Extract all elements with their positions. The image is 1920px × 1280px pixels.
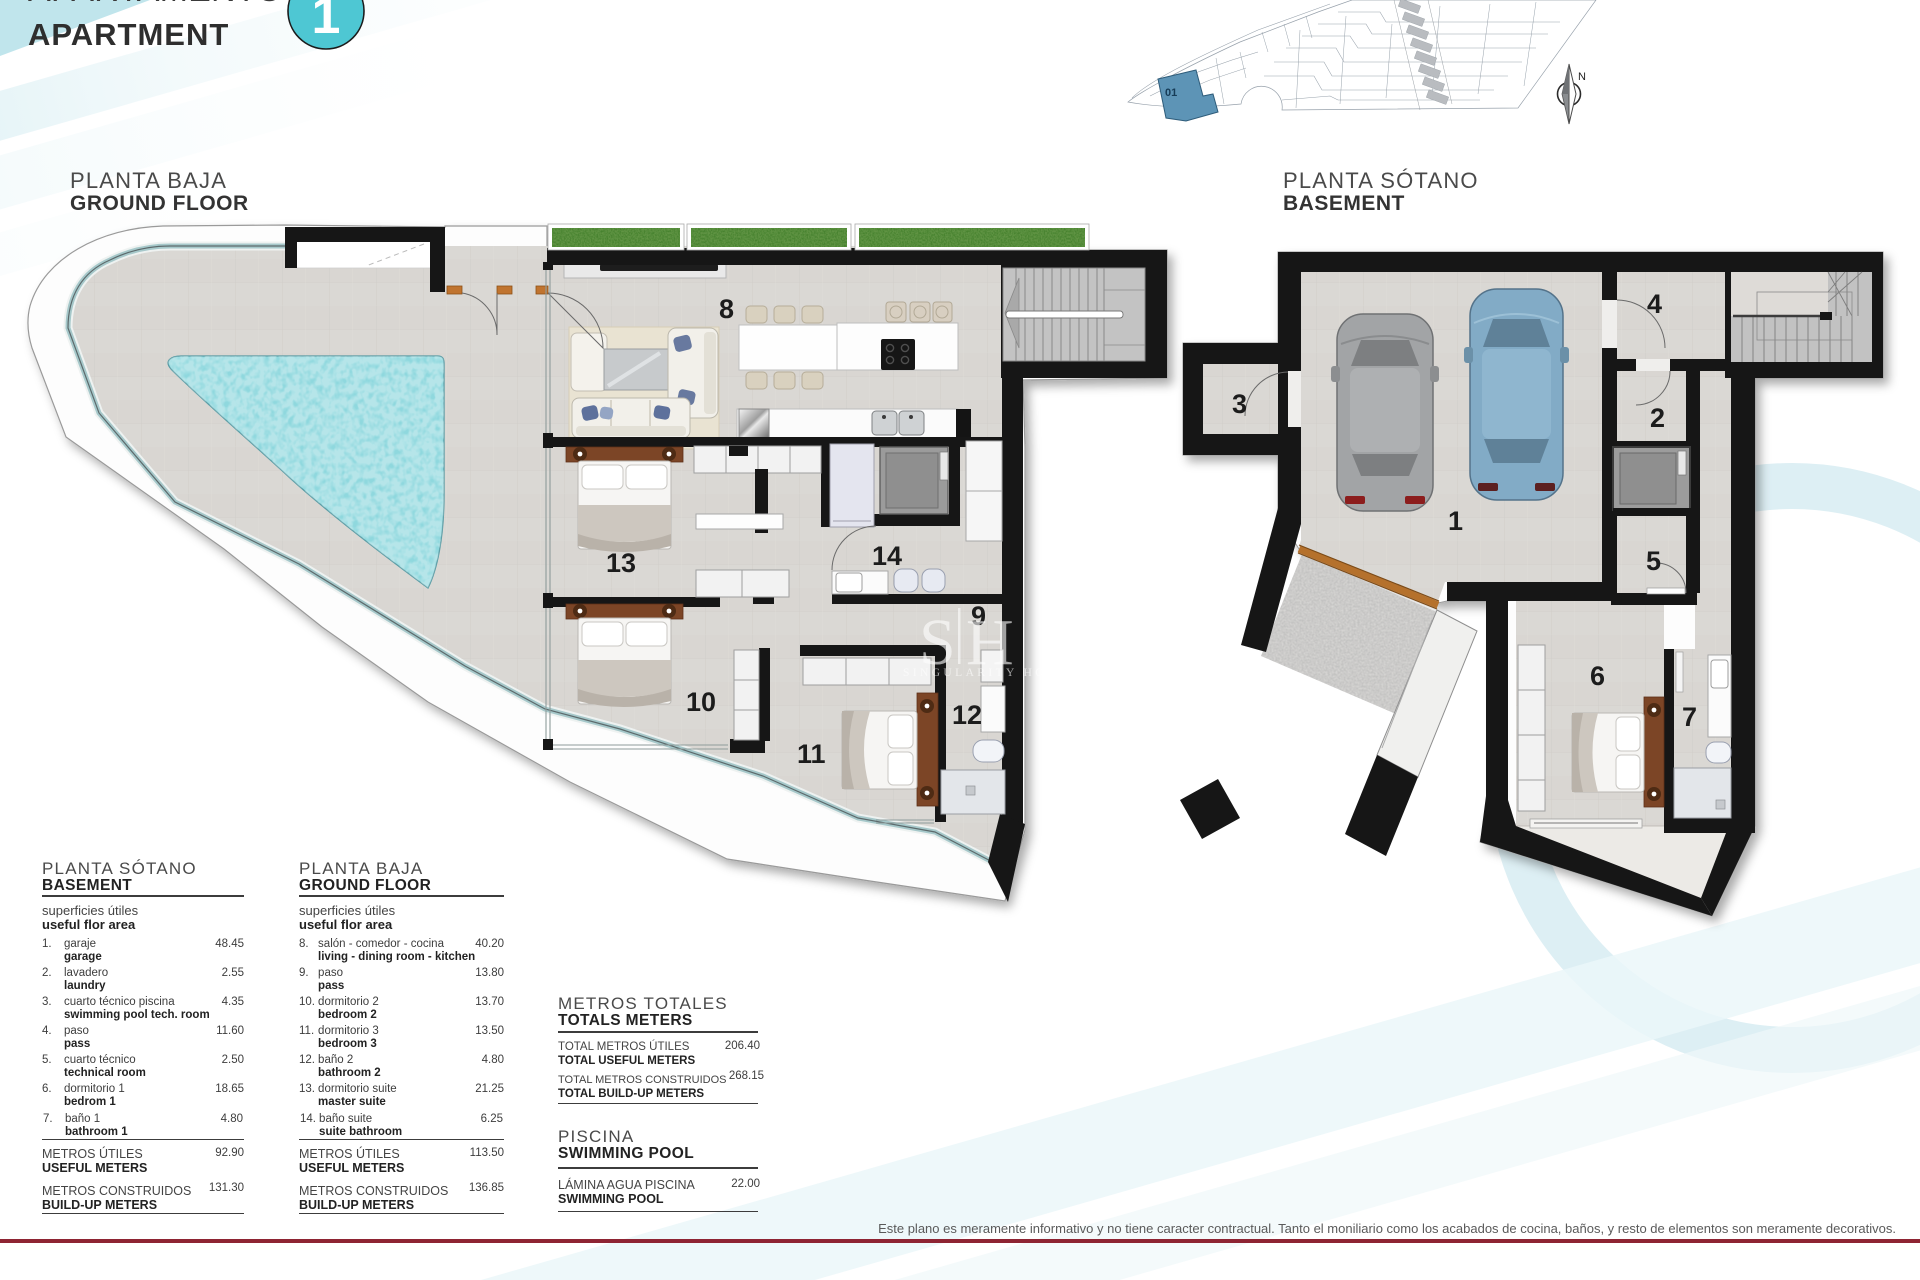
svg-text:12: 12 xyxy=(952,700,982,730)
svg-text:7: 7 xyxy=(1682,702,1697,732)
svg-text:10: 10 xyxy=(686,687,716,717)
svg-text:6: 6 xyxy=(1590,661,1605,691)
svg-text:8: 8 xyxy=(719,294,734,324)
svg-text:3: 3 xyxy=(1232,389,1247,419)
svg-text:N: N xyxy=(1578,71,1586,83)
svg-text:01: 01 xyxy=(1165,87,1177,99)
svg-text:4: 4 xyxy=(1647,289,1662,319)
svg-text:11: 11 xyxy=(797,739,826,769)
svg-text:5: 5 xyxy=(1646,546,1661,576)
svg-text:SINGULARITY HOM: SINGULARITY HOM xyxy=(903,667,1061,679)
svg-text:14: 14 xyxy=(872,541,902,571)
svg-text:13: 13 xyxy=(606,548,636,578)
svg-text:1: 1 xyxy=(1448,506,1463,536)
svg-text:1: 1 xyxy=(312,0,341,45)
svg-text:2: 2 xyxy=(1650,403,1665,433)
